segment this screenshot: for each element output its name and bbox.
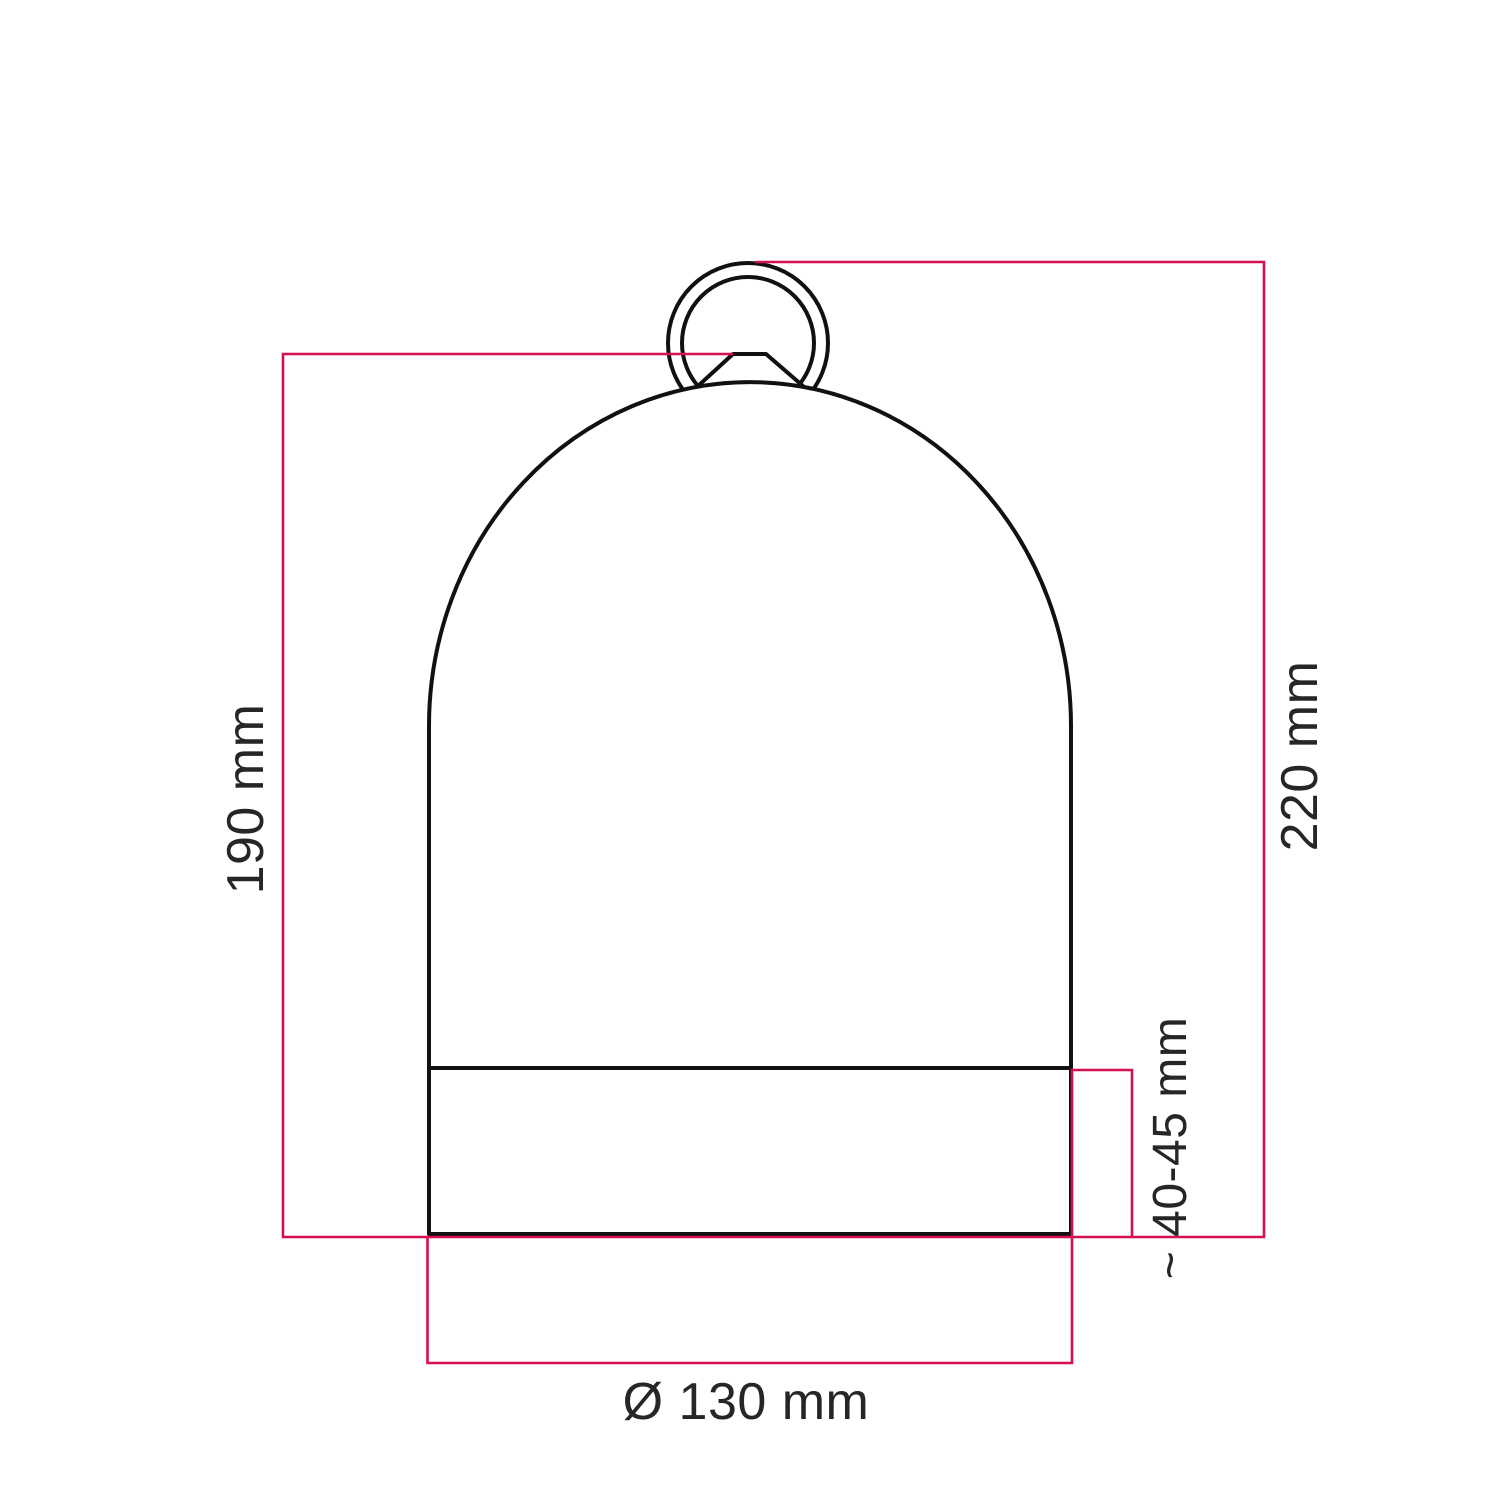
band-height-dimension-label: ~ 40-45 mm	[1144, 1017, 1197, 1279]
base-diameter-dimension-label: Ø 130 mm	[623, 1373, 870, 1431]
product-outline-group	[429, 263, 1071, 1234]
diagram-svg: 190 mm 220 mm ~ 40-45 mm Ø 130 mm	[0, 0, 1500, 1500]
bell-lampshade-dimension-diagram: 190 mm 220 mm ~ 40-45 mm Ø 130 mm	[0, 0, 1500, 1500]
right-height-dimension-label: 220 mm	[1271, 661, 1329, 852]
diameter-dimension-lines	[428, 1237, 1073, 1363]
bell-dome-outline	[429, 382, 1071, 1234]
band-height-dimension-lines	[1072, 1070, 1132, 1237]
left-height-dimension-label: 190 mm	[217, 704, 275, 895]
